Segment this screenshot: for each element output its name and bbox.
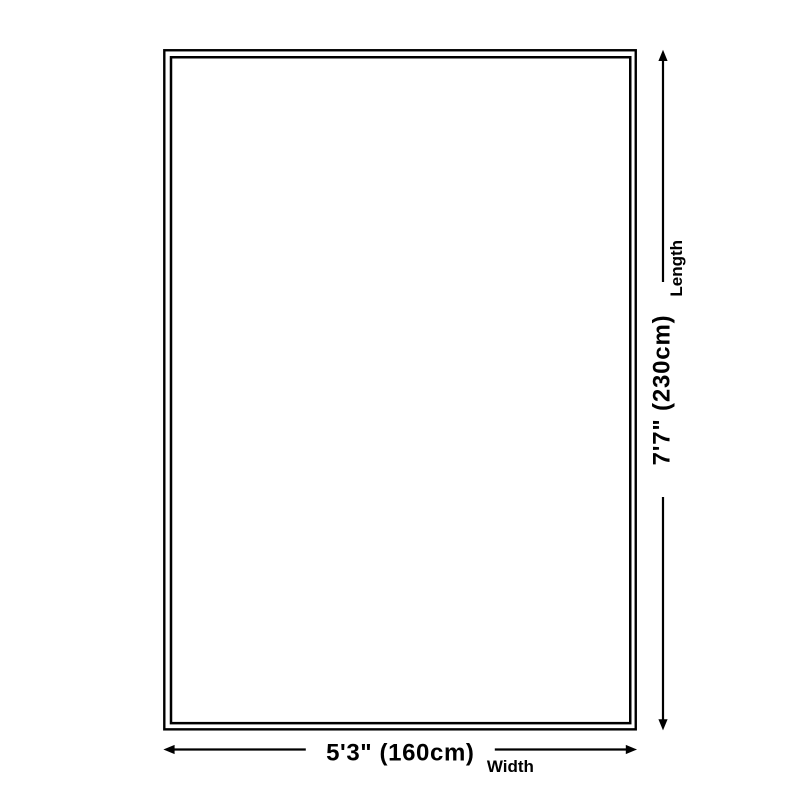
svg-text:Length: Length [667, 240, 686, 297]
svg-text:7'7" (230cm): 7'7" (230cm) [649, 315, 676, 466]
svg-text:5'3" (160cm): 5'3" (160cm) [326, 740, 474, 767]
svg-text:Width: Width [487, 757, 534, 776]
